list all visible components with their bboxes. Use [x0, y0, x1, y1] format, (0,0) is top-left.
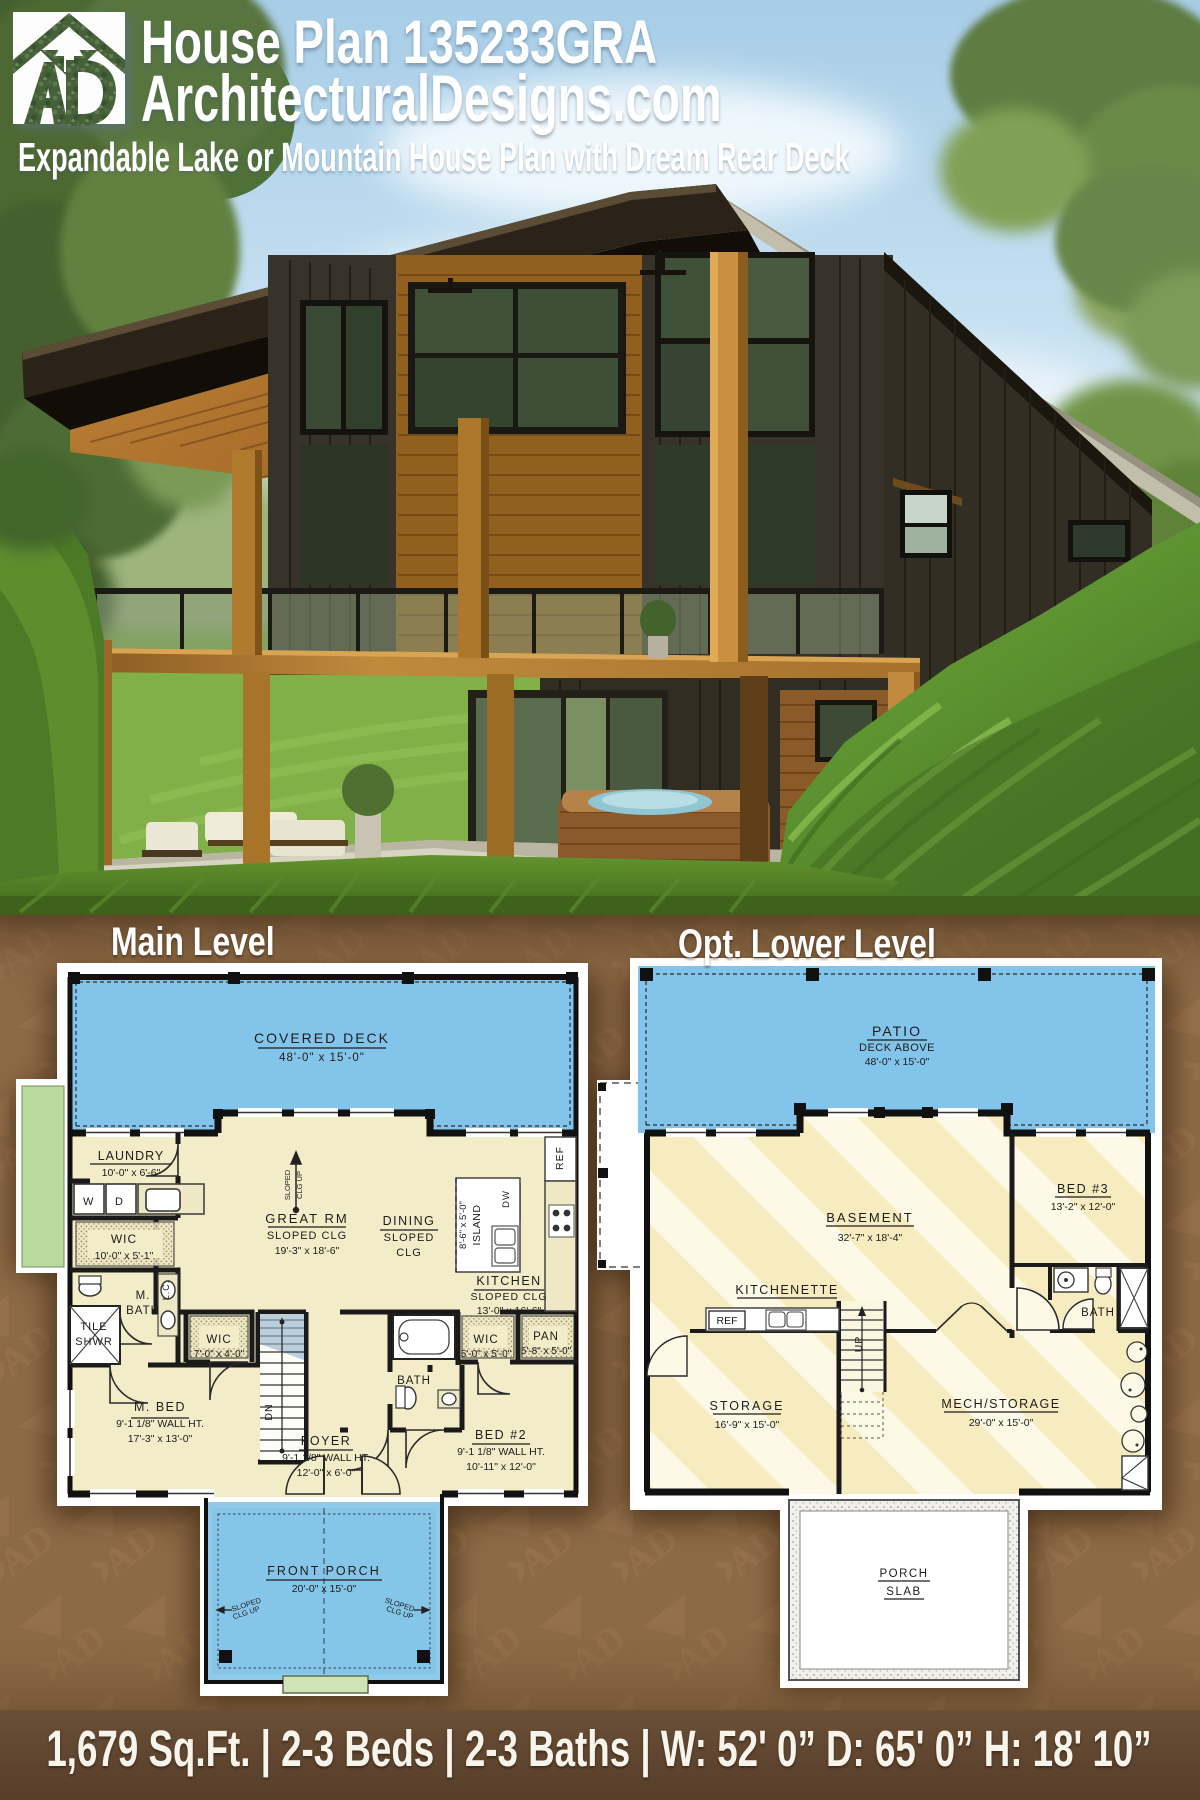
svg-text:CLG UP: CLG UP [295, 1171, 304, 1199]
svg-text:PATIO: PATIO [872, 1023, 922, 1039]
svg-text:D: D [115, 1196, 123, 1208]
svg-text:48'-0" x 15'-0": 48'-0" x 15'-0" [279, 1052, 365, 1064]
svg-text:PORCH: PORCH [879, 1568, 928, 1580]
svg-text:KITCHENETTE: KITCHENETTE [735, 1283, 838, 1297]
svg-text:L.C.: L.C. [161, 1280, 171, 1301]
svg-text:UP: UP [853, 1336, 865, 1353]
svg-text:48'-0" x 15'-0": 48'-0" x 15'-0" [865, 1056, 930, 1068]
svg-text:SLOPED: SLOPED [283, 1169, 292, 1200]
svg-text:SHWR: SHWR [75, 1336, 113, 1348]
svg-text:SLOPED CLG: SLOPED CLG [470, 1291, 547, 1303]
svg-text:DW: DW [501, 1190, 512, 1208]
svg-text:FOYER: FOYER [301, 1434, 352, 1448]
svg-text:BATH: BATH [397, 1375, 431, 1387]
svg-text:17'-3" x 13'-0": 17'-3" x 13'-0" [128, 1433, 193, 1445]
svg-text:SLOPED CLG: SLOPED CLG [267, 1230, 347, 1242]
svg-text:12'-0" x 6'-0": 12'-0" x 6'-0" [297, 1467, 356, 1479]
svg-text:M.: M. [136, 1290, 151, 1302]
svg-text:MECH/STORAGE: MECH/STORAGE [941, 1397, 1060, 1411]
svg-text:19'-3" x 18'-6": 19'-3" x 18'-6" [275, 1245, 340, 1257]
svg-text:ISLAND: ISLAND [471, 1205, 483, 1246]
svg-text:13'-0" x 16'-6": 13'-0" x 16'-6" [477, 1305, 542, 1317]
svg-text:BATH: BATH [126, 1305, 160, 1317]
svg-text:SLAB: SLAB [886, 1586, 921, 1598]
svg-text:WIC: WIC [473, 1334, 498, 1346]
svg-text:STORAGE: STORAGE [710, 1399, 785, 1413]
svg-text:29'-0" x 15'-0": 29'-0" x 15'-0" [969, 1417, 1034, 1429]
svg-text:DINING: DINING [383, 1214, 436, 1228]
svg-text:FRONT PORCH: FRONT PORCH [267, 1564, 380, 1578]
svg-text:13'-2" x 12'-0": 13'-2" x 12'-0" [1051, 1201, 1116, 1213]
svg-text:DN: DN [263, 1403, 275, 1420]
svg-text:7'-0" x 4'-0": 7'-0" x 4'-0" [194, 1349, 245, 1360]
svg-text:5'-0" x 5'-0": 5'-0" x 5'-0" [461, 1349, 512, 1360]
svg-text:16'-9" x 15'-0": 16'-9" x 15'-0" [715, 1419, 780, 1431]
svg-text:PAN: PAN [533, 1331, 559, 1343]
svg-text:9'-1 1/8" WALL HT.: 9'-1 1/8" WALL HT. [282, 1452, 370, 1464]
svg-text:10'-0" x 6'-6": 10'-0" x 6'-6" [102, 1167, 161, 1179]
svg-text:5'-8" x 5'-0": 5'-8" x 5'-0" [521, 1346, 572, 1357]
svg-text:9'-1 1/8" WALL HT.: 9'-1 1/8" WALL HT. [116, 1418, 204, 1430]
svg-text:DECK ABOVE: DECK ABOVE [859, 1042, 935, 1054]
svg-text:WIC: WIC [111, 1232, 137, 1246]
svg-text:W: W [83, 1196, 94, 1208]
svg-text:M. BED: M. BED [134, 1400, 186, 1414]
svg-text:REF: REF [717, 1315, 738, 1327]
svg-text:REF: REF [554, 1146, 566, 1170]
svg-text:BATH: BATH [1081, 1307, 1115, 1319]
svg-text:CLG: CLG [396, 1247, 422, 1259]
svg-text:WIC: WIC [206, 1334, 231, 1346]
svg-text:BED #3: BED #3 [1057, 1182, 1109, 1196]
svg-text:TILE: TILE [80, 1321, 107, 1333]
svg-text:8'-6" x 5'-0": 8'-6" x 5'-0" [458, 1201, 469, 1249]
svg-text:COVERED DECK: COVERED DECK [254, 1030, 390, 1046]
svg-text:BASEMENT: BASEMENT [826, 1210, 914, 1225]
svg-text:10'-0" x 5'-1": 10'-0" x 5'-1" [95, 1250, 154, 1262]
svg-text:32'-7" x 18'-4": 32'-7" x 18'-4" [838, 1232, 903, 1244]
svg-text:GREAT RM: GREAT RM [265, 1211, 348, 1226]
svg-text:9'-1 1/8" WALL HT.: 9'-1 1/8" WALL HT. [457, 1446, 545, 1458]
svg-text:20'-0" x 15'-0": 20'-0" x 15'-0" [292, 1583, 357, 1595]
svg-text:SLOPED: SLOPED [384, 1232, 435, 1244]
svg-text:BED #2: BED #2 [475, 1428, 527, 1442]
svg-text:LAUNDRY: LAUNDRY [98, 1149, 165, 1163]
svg-text:10'-11" x 12'-0": 10'-11" x 12'-0" [466, 1461, 536, 1473]
svg-text:KITCHEN: KITCHEN [476, 1274, 541, 1288]
